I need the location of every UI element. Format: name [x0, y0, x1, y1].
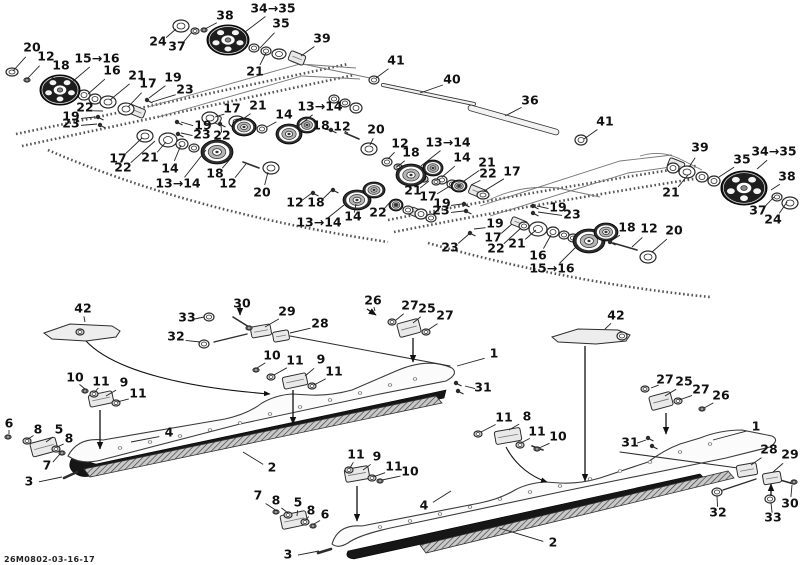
screw-stem [535, 214, 539, 216]
washer-ring [782, 197, 798, 209]
screw-head [96, 115, 100, 119]
callout-label: 23 [176, 82, 193, 97]
callout-leader [464, 170, 479, 181]
callout-label: 3 [25, 474, 34, 489]
idler-wheel-center [604, 231, 607, 233]
screw-stem [149, 101, 153, 103]
spoke-hole [68, 90, 75, 95]
callout-label: 13→14 [296, 215, 342, 230]
washer-ring [52, 446, 60, 452]
callout-label: 14 [275, 107, 293, 122]
washer-ring [667, 163, 679, 173]
callout-label: 17 [223, 101, 240, 116]
rail-hole [148, 441, 152, 444]
callout-leader [382, 476, 400, 480]
callout-label: 21 [662, 185, 679, 200]
callout-leader [305, 368, 314, 376]
callout-label: 24 [149, 34, 167, 49]
washer-ring [204, 313, 214, 321]
callout-label: 13→14 [425, 135, 471, 150]
rail-hole [238, 422, 242, 425]
callout-label: 23 [563, 207, 580, 222]
rail-hole [413, 378, 417, 381]
rod [345, 133, 359, 139]
washer-ring [345, 467, 353, 473]
washer-ring [23, 438, 31, 444]
rail-hole [358, 392, 362, 395]
screw-stem [100, 118, 104, 120]
assembly-arrow-curve [506, 447, 547, 482]
screw-stem [335, 191, 339, 193]
callout-leader [771, 184, 780, 190]
screw-head [175, 120, 179, 124]
screw-stem [472, 234, 476, 236]
callout-label: 21 [246, 64, 263, 79]
washer-ring [547, 227, 559, 237]
screw-stem [458, 384, 462, 386]
callout-label: 6 [5, 416, 14, 431]
callout-label: 11 [528, 424, 545, 439]
callout-leader [184, 150, 206, 177]
screw-head [650, 444, 654, 448]
callout-leader [265, 319, 279, 327]
washer-ring [432, 179, 440, 185]
washer-ring [516, 442, 524, 448]
callout-label: 23 [62, 116, 79, 131]
bracket-block [250, 324, 272, 338]
callout-label: 2 [549, 535, 558, 550]
callout-leader [471, 180, 480, 185]
callout-leader [428, 324, 438, 330]
screw-head [176, 132, 180, 136]
callout-label: 29 [278, 304, 295, 319]
callout-leader [81, 124, 97, 125]
callout-label: 30 [233, 296, 251, 311]
rail-hole [438, 513, 442, 516]
callout-leader [267, 122, 276, 127]
rod [723, 479, 756, 490]
rail-hole [648, 461, 652, 464]
callout-label: 41 [596, 114, 613, 129]
rail-hole [708, 443, 712, 446]
callout-leader [13, 57, 26, 71]
callout-label: 21 [508, 236, 525, 251]
callout-label: 33 [178, 310, 195, 325]
callout-label: 17 [139, 76, 156, 91]
washer-ring [575, 135, 587, 145]
callout-leader [481, 424, 496, 432]
callout-label: 18 [52, 58, 69, 73]
callout-label: 1 [490, 346, 499, 361]
callout-label: 13→14 [297, 99, 343, 114]
callout-leader [265, 172, 268, 185]
callout-label: 11 [325, 364, 342, 379]
callout-leader [27, 66, 40, 79]
washer-ring [361, 143, 377, 155]
callout-label: 32 [167, 329, 184, 344]
callout-label: 21 [249, 98, 266, 113]
callout-label: 37 [168, 39, 185, 54]
callout-label: 27 [656, 372, 673, 387]
callout-label: 17 [503, 164, 520, 179]
callout-label: 24 [764, 212, 782, 227]
screw-stem [535, 207, 539, 209]
callout-leader [243, 452, 263, 464]
callout-label: 8 [523, 409, 532, 424]
callout-leader [437, 186, 450, 194]
bracket-block [282, 373, 308, 390]
washer-ring [272, 49, 286, 59]
callout-label: 29 [781, 447, 798, 462]
screw-stem [460, 392, 464, 394]
callout-leader [652, 239, 667, 252]
callout-label: 18 [618, 220, 635, 235]
bracket-block [649, 391, 674, 410]
exploded-parts-diagram: 20121815→16162117192322192324373834→3535… [0, 0, 800, 565]
spoke-hole [212, 40, 219, 45]
callout-leader [298, 551, 319, 555]
callout-leader [458, 234, 469, 243]
spoke-hole [64, 80, 71, 85]
callout-leader [704, 403, 713, 408]
callout-label: 22 [479, 166, 496, 181]
washer-ring [118, 103, 134, 115]
washer-ring [173, 20, 189, 32]
callout-leader [374, 307, 375, 311]
callout-leader [57, 444, 64, 447]
callout-label: 11 [495, 410, 512, 425]
callout-leader [396, 314, 404, 320]
callout-leader [773, 463, 783, 472]
wheel-bearing [57, 88, 63, 92]
screw-stem [180, 135, 184, 137]
callout-label: 5 [55, 422, 64, 437]
callout-label: 20 [665, 223, 683, 238]
idler-wheel-center [215, 151, 218, 153]
bracket-block [397, 318, 422, 337]
washer-ring [696, 172, 708, 182]
screw-head [145, 98, 149, 102]
screw-head [456, 389, 460, 393]
callout-leader [88, 79, 105, 94]
callout-leader [84, 316, 85, 322]
rail-hole [618, 470, 622, 473]
callout-leader [195, 317, 204, 319]
callout-leader [451, 211, 464, 212]
callout-leader [457, 358, 485, 366]
rail-hole [678, 451, 682, 454]
callout-label: 26 [364, 293, 382, 308]
rod [613, 243, 637, 250]
callout-label: 7 [254, 488, 263, 503]
callout-leader [72, 67, 90, 82]
callout-label: 1 [752, 419, 761, 434]
callout-leader [388, 152, 395, 159]
rail-hole [328, 399, 332, 402]
screw-stem [468, 212, 472, 214]
spoke-hole [217, 30, 224, 35]
screw-stem [654, 447, 658, 449]
callout-label: 11 [129, 386, 146, 401]
callout-leader [297, 510, 298, 516]
rail-hole [498, 498, 502, 501]
callout-leader [181, 133, 193, 136]
idler-wheel-center [409, 174, 412, 176]
callout-label: 14 [453, 150, 471, 165]
idler-wheel-center [372, 189, 375, 191]
callout-label: 42 [607, 308, 624, 323]
callout-leader [451, 204, 462, 205]
callout-label: 4 [420, 498, 429, 513]
rod [233, 317, 249, 327]
screw-stem [179, 123, 183, 125]
callout-leader [505, 107, 522, 116]
callout-label: 22 [114, 160, 131, 175]
callout-leader [128, 93, 142, 107]
callout-label: 2 [268, 460, 277, 475]
figure-number: 26M0802-03-16-17 [4, 555, 95, 564]
callout-leader [314, 379, 326, 385]
spoke-hole [732, 177, 740, 183]
callout-leader [757, 160, 767, 169]
callout-label: 15→16 [529, 261, 575, 276]
callout-leader [521, 438, 530, 443]
callout-label: 31 [621, 435, 638, 450]
callout-label: 35 [272, 16, 289, 31]
rail-hole [468, 506, 472, 509]
callout-label: 42 [74, 301, 91, 316]
callout-label: 25 [418, 301, 435, 316]
washer-ring [350, 103, 362, 113]
callout-leader [181, 122, 193, 126]
callout-label: 8 [65, 431, 74, 446]
screw-head [98, 123, 102, 127]
screw-head [531, 211, 535, 215]
washer-ring [76, 329, 84, 335]
bracket-block [762, 471, 782, 485]
rail-hole [268, 413, 272, 416]
callout-leader [632, 237, 642, 247]
callout-label: 22 [487, 241, 504, 256]
callout-leader [484, 179, 504, 191]
callout-label: 19 [486, 216, 503, 231]
wheel-bearing [741, 186, 747, 191]
callout-label: 30 [781, 496, 799, 511]
callout-label: 16 [103, 63, 121, 78]
callout-label: 11 [286, 353, 303, 368]
washer-ring [100, 96, 116, 108]
spoke-hole [232, 30, 239, 35]
callout-leader [373, 473, 385, 477]
washer-ring [257, 125, 267, 133]
washer-ring [474, 431, 482, 437]
callout-label: 9 [317, 352, 326, 367]
idler-wheel-center [305, 124, 308, 126]
screw-head [531, 204, 535, 208]
callout-label: 27 [692, 382, 709, 397]
callout-label: 39 [313, 31, 330, 46]
callout-label: 9 [373, 449, 382, 464]
washer-ring [641, 386, 649, 392]
washer-ring [617, 332, 627, 340]
callout-label: 28 [760, 442, 777, 457]
callout-label: 12 [333, 119, 350, 134]
callout-label: 9 [120, 375, 129, 390]
callout-label: 34→35 [751, 144, 796, 159]
callout-label: 38 [216, 8, 233, 23]
callout-label: 41 [387, 53, 404, 68]
rail-hole [378, 526, 382, 529]
callout-label: 39 [691, 140, 708, 155]
washer-ring [199, 340, 209, 348]
washer-ring [640, 251, 656, 263]
washer-ring [382, 158, 392, 166]
washer-ring [112, 400, 120, 406]
callout-label: 33 [764, 510, 781, 525]
callout-label: 28 [311, 316, 328, 331]
callout-label: 8 [34, 422, 43, 437]
screw-head [218, 122, 222, 126]
callout-leader [245, 17, 265, 32]
callout-label: 22 [369, 205, 386, 220]
screw-head [462, 202, 466, 206]
washer-ring [308, 383, 316, 389]
callout-label: 11 [385, 459, 402, 474]
callout-leader [110, 84, 130, 100]
callout-label: 10 [549, 429, 567, 444]
callout-leader [584, 130, 597, 139]
callout-label: 20 [253, 185, 271, 200]
callout-label: 35 [733, 152, 750, 167]
callout-label: 20 [367, 122, 385, 137]
callout-label: 10 [263, 348, 281, 363]
callout-label: 4 [165, 425, 174, 440]
callout-leader [80, 384, 86, 389]
washer-ring [301, 519, 309, 525]
washer-ring [765, 495, 775, 503]
callout-leader [537, 206, 549, 209]
callout-leader [260, 33, 275, 48]
washer-ring [388, 319, 396, 325]
bracket-block [272, 330, 289, 343]
callout-label: 18 [307, 195, 324, 210]
callout-label: 8 [272, 493, 281, 508]
spoke-hole [224, 46, 231, 51]
washer-ring [263, 162, 279, 174]
callout-label: 11 [92, 374, 109, 389]
callout-label: 14 [344, 209, 362, 224]
callout-leader [679, 395, 692, 400]
callout-label: 8 [307, 503, 316, 518]
callout-label: 34→35 [250, 1, 295, 16]
callout-label: 23 [432, 203, 449, 218]
callout-label: 12 [219, 176, 236, 191]
callout-label: 23 [193, 127, 210, 142]
callout-label: 6 [321, 507, 330, 522]
arm-outline [293, 62, 370, 78]
idler-wheel-center [431, 167, 434, 169]
rail-hole [118, 447, 122, 450]
spoke-hole [236, 40, 243, 45]
callout-label: 27 [436, 308, 453, 323]
washer-ring [708, 176, 720, 186]
callout-leader [420, 85, 443, 93]
screw-head [454, 381, 458, 385]
rail-hole [298, 406, 302, 409]
idler-wheel-center [242, 126, 245, 128]
spoke-hole [753, 188, 761, 194]
parts-diagram-page: 20121815→16162117192322192324373834→3535… [0, 0, 800, 565]
washer-ring [191, 28, 199, 34]
spoke-hole [740, 195, 748, 201]
callout-leader [314, 521, 320, 525]
idler-wheel-center [287, 133, 290, 135]
callout-label: 10 [401, 464, 419, 479]
washer-ring [159, 133, 177, 147]
callout-leader [39, 477, 62, 482]
bracket-block [288, 50, 307, 65]
rod [64, 472, 77, 478]
callout-label: 18 [402, 145, 419, 160]
washer-ring [403, 206, 413, 214]
callout-leader [166, 29, 176, 38]
callout-leader [274, 368, 287, 375]
shaft-rod [383, 85, 474, 104]
washer-ring [6, 68, 18, 76]
callout-leader [290, 328, 311, 333]
callout-label: 13→14 [155, 176, 201, 191]
washer-ring [176, 139, 188, 149]
callout-label: 32 [709, 505, 726, 520]
callout-label: 18 [312, 118, 329, 133]
callout-leader [539, 443, 550, 448]
callout-leader [442, 166, 455, 177]
rail-hole [558, 485, 562, 488]
screw-stem [650, 439, 654, 441]
screw-head [464, 209, 468, 213]
screw-head [646, 436, 650, 440]
spoke-hole [50, 80, 57, 85]
callout-leader [301, 47, 314, 56]
idler-wheel-center [587, 240, 590, 242]
callout-leader [605, 323, 611, 329]
callout-label: 22 [213, 128, 230, 143]
callout-leader [126, 138, 142, 154]
idler-wheel-center [457, 185, 460, 187]
bracket-block [736, 462, 758, 477]
callout-label: 25 [675, 374, 692, 389]
rail-hole [528, 491, 532, 494]
washer-ring [415, 209, 427, 219]
callout-label: 21 [141, 150, 158, 165]
callout-label: 5 [294, 495, 303, 510]
washer-ring [249, 44, 259, 52]
callout-leader [257, 363, 265, 368]
rod [318, 549, 331, 553]
rail-hole [208, 429, 212, 432]
callout-leader [433, 491, 451, 502]
callout-label: 10 [66, 370, 84, 385]
rod [214, 334, 247, 342]
rail-hole [178, 435, 182, 438]
rail-hole [408, 520, 412, 523]
callout-leader [376, 69, 389, 78]
callout-label: 23 [441, 240, 458, 255]
callout-label: 14 [161, 161, 179, 176]
callout-leader [53, 454, 60, 462]
spoke-hole [45, 90, 52, 95]
rod [290, 336, 450, 366]
